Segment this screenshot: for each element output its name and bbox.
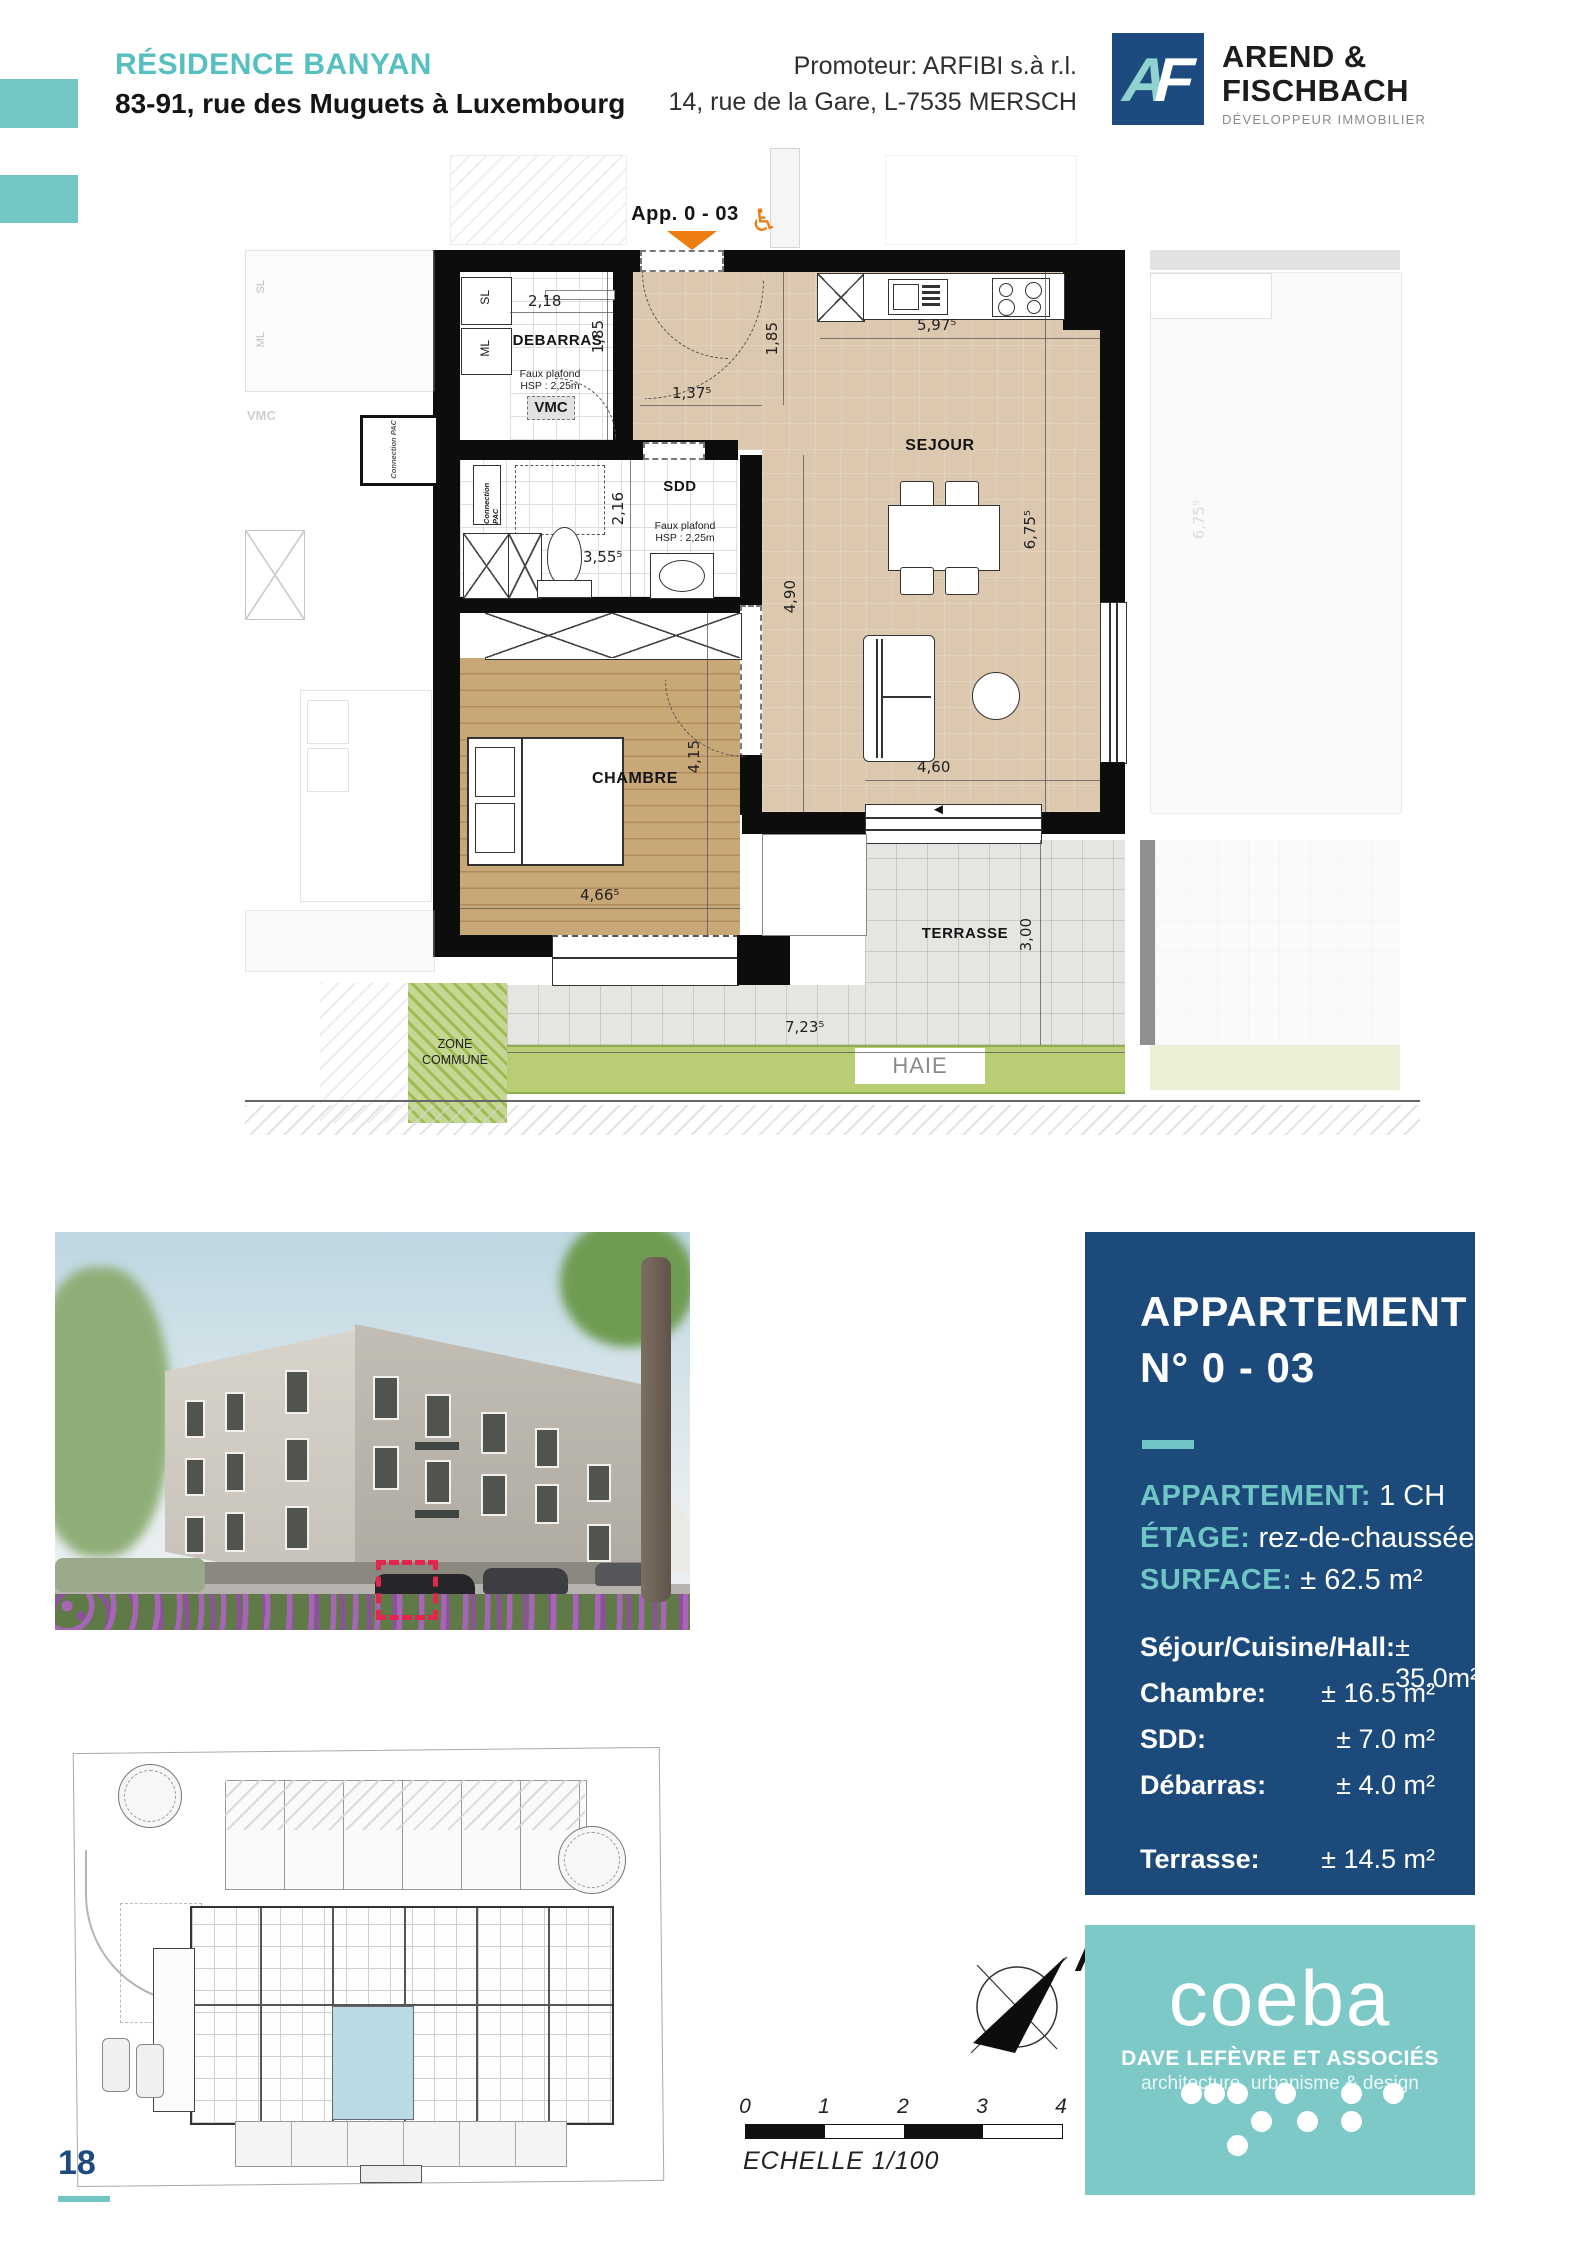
wall-chambre-bottom [433, 935, 552, 957]
wall-right-upper [1100, 250, 1125, 602]
porch-white [762, 834, 867, 936]
residence-name: RÉSIDENCE BANYAN [115, 48, 432, 82]
toilet [547, 527, 582, 585]
dining-chair-3 [900, 567, 934, 595]
bed [467, 737, 624, 866]
kitchen-sink [888, 279, 948, 315]
flower-strip [55, 1594, 690, 1630]
haie-strip-faint [1150, 1045, 1400, 1090]
unit-label: App. 0 - 03 [615, 203, 755, 226]
terrace-door-arrow: ◄ [931, 801, 946, 818]
spec-surface: SURFACE: ± 62.5 m² [1140, 1564, 1460, 1597]
terrasse-floor-right [865, 840, 1125, 1045]
dim-sejour-depth-right: 6,75⁵ [1021, 510, 1039, 549]
tree-left [55, 1267, 170, 1557]
wall-sejour-left-lower [740, 755, 762, 815]
header: RÉSIDENCE BANYAN 83-91, rue des Muguets … [0, 0, 1575, 140]
terrasse-label: TERRASSE [895, 925, 1035, 942]
pac-niche: Connection PAC [360, 415, 439, 486]
coeba-block: coeba DAVE LEFÈVRE ET ASSOCIÉS architect… [1085, 1925, 1475, 2195]
car-2 [483, 1568, 568, 1594]
sdd-label: SDD [640, 478, 720, 495]
teal-tab-2 [0, 175, 78, 223]
wheelchair-icon: ♿ [750, 203, 778, 239]
ground-line [245, 1100, 1420, 1102]
kitchen-fridge [817, 273, 865, 322]
dim-sejour-width-bottom: 4,60 [917, 758, 950, 776]
tree-right-trunk [641, 1257, 671, 1602]
dining-table [888, 505, 1000, 571]
scale-tick-0: 0 [739, 2095, 751, 2119]
scale-tick-2: 2 [897, 2095, 909, 2119]
sejour-label: SEJOUR [865, 437, 1015, 455]
page-number-accent [58, 2196, 110, 2202]
chambre-window [552, 935, 739, 986]
terrasse-floor-left [507, 985, 865, 1045]
scale-bar-segments [745, 2124, 1063, 2139]
sdd-faux-plafond: Faux plafond HSP : 2,25m [630, 520, 740, 544]
wall-top-left [433, 250, 640, 272]
coffee-table [972, 672, 1020, 720]
wardrobe-x2 [612, 613, 740, 658]
dim-sejour-width: 5,97⁵ [917, 316, 956, 334]
site-car-1 [102, 2038, 130, 2092]
upper-terraces-hatch [225, 1780, 585, 1830]
building-left-facade [165, 1330, 355, 1588]
residence-address: 83-91, rue des Muguets à Luxembourg [115, 88, 625, 120]
spec-type: APPARTEMENT: 1 CH [1140, 1480, 1460, 1513]
floor-plan: ◄ App. 0 - 03 ♿ SL ML DEBARRAS Faux plaf… [245, 140, 1420, 1140]
site-plan [60, 1738, 680, 2205]
room-row-debarras: Débarras: ± 4.0 m² [1140, 1770, 1435, 1801]
entry-arrow-icon [667, 231, 717, 250]
zone-commune-label: ZONE COMMUNE [395, 1036, 515, 1068]
debarras-faux-plafond: Faux plafond HSP : 2,25m [495, 368, 605, 392]
wall-terrace-corner [737, 935, 790, 985]
building-right-wing [355, 1324, 655, 1586]
dim-sejour-depth-left: 4,90 [781, 580, 799, 613]
terrace-divider [1140, 840, 1155, 1045]
dim-hall-width: 1,37⁵ [672, 384, 711, 402]
wardrobe-x1 [485, 613, 612, 658]
teal-tab-1 [0, 79, 78, 128]
coeba-logo: coeba [1085, 1953, 1475, 2044]
dim-debarras-depth: 1,85 [589, 320, 607, 353]
dim-chambre-width: 4,66⁵ [580, 886, 619, 904]
room-row-chambre: Chambre: ± 16.5 m² [1140, 1678, 1435, 1709]
promoter-block: Promoteur: ARFIBI s.à r.l. 14, rue de la… [640, 48, 1077, 120]
brochure-page: RÉSIDENCE BANYAN 83-91, rue des Muguets … [0, 0, 1575, 2260]
connection-pac-label-1: Connection PAC [389, 420, 398, 479]
connection-pac-label-2: Connection PAC [482, 468, 500, 524]
promoter-line2: 14, rue de la Gare, L-7535 MERSCH [640, 84, 1077, 120]
highlighted-unit [332, 2006, 414, 2120]
entry-door-gap [640, 250, 724, 272]
washer-box-1 [463, 533, 510, 599]
site-car-2 [136, 2044, 164, 2098]
scale-caption: ECHELLE 1/100 [743, 2147, 939, 2176]
dim-terrasse-width: 7,23⁵ [785, 1018, 824, 1036]
pac-niche-2: Connection PAC [473, 465, 501, 525]
room-row-sdd: SDD: ± 7.0 m² [1140, 1724, 1435, 1755]
sofa [863, 635, 935, 762]
dim-terrasse-depth: 3,00 [1017, 918, 1035, 951]
upper-terrace-faint [450, 155, 627, 245]
terrace-window: ◄ [865, 804, 1042, 844]
arend-fischbach-logo-icon: A F [1112, 33, 1204, 125]
spec-floor: ÉTAGE: rez-de-chaussée [1140, 1522, 1460, 1555]
sidewalk-hatch [245, 1105, 1420, 1135]
building-photo [55, 1232, 690, 1630]
unit-location-marker [376, 1560, 438, 1620]
scale-tick-1: 1 [818, 2095, 830, 2119]
window-right [1100, 602, 1127, 764]
toilet-tank [537, 580, 592, 598]
debarras-label: DEBARRAS [485, 332, 630, 349]
info-panel: APPARTEMENT N° 0 - 03 APPARTEMENT: 1 CH … [1085, 1232, 1475, 1895]
logo-name: AREND & FISCHBACH [1222, 40, 1409, 108]
kitchen-counter [863, 273, 1065, 320]
page-number: 18 [58, 2144, 96, 2183]
promoter-line1: Promoteur: ARFIBI s.à r.l. [640, 48, 1077, 84]
site-tree-2 [558, 1826, 626, 1894]
scale-tick-4: 4 [1055, 2095, 1067, 2119]
panel-accent-bar [1142, 1440, 1194, 1449]
scale-tick-3: 3 [976, 2095, 988, 2119]
room-row-terrasse: Terrasse: ± 14.5 m² [1140, 1844, 1435, 1875]
shower-dashed [515, 465, 605, 535]
dim-chambre-depth: 4,15 [685, 740, 703, 773]
scale-bar: 0 1 2 3 4 ECHELLE 1/100 [735, 2095, 1080, 2175]
wall-sejour-left-upper [740, 455, 762, 605]
entrance-bump [360, 2165, 422, 2183]
dim-debarras-width: 2,18 [528, 292, 561, 310]
panel-title: APPARTEMENT N° 0 - 03 [1140, 1284, 1468, 1396]
hedge [55, 1558, 205, 1592]
chambre-label: CHAMBRE [575, 770, 695, 788]
wall-top-right [722, 250, 1125, 272]
kitchen-stove [992, 278, 1050, 317]
dining-chair-4 [945, 567, 979, 595]
wall-sdd-bottom [433, 597, 740, 613]
sdd-door-gap [643, 442, 705, 460]
coeba-subtitle: DAVE LEFÈVRE ET ASSOCIÉS [1085, 2047, 1475, 2071]
dim-hall-depth: 1,85 [763, 322, 781, 355]
vmc-box: VMC [527, 396, 575, 420]
kitchen-column [1063, 272, 1100, 330]
lower-terraces [235, 2121, 567, 2167]
logo-tagline: DÉVELOPPEUR IMMOBILIER [1222, 112, 1426, 127]
site-tree-1 [118, 1764, 182, 1828]
dim-sdd-width: 3,55⁵ [583, 548, 622, 566]
upper-right-faint [885, 155, 1077, 245]
dim-sdd-depth: 2,16 [609, 492, 627, 525]
haie-label: HAIE [855, 1048, 985, 1084]
sdd-sink [650, 553, 714, 599]
closet-sl: SL [461, 277, 512, 325]
